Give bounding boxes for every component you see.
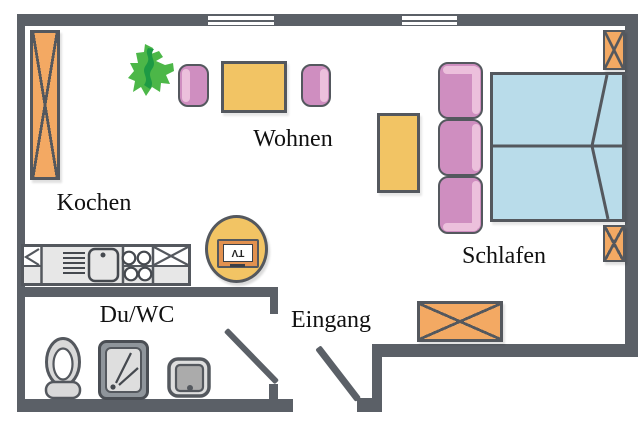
double-bed-icon bbox=[490, 72, 625, 222]
bath-doorpost-wall bbox=[270, 287, 278, 314]
room-label-kochen: Kochen bbox=[57, 190, 132, 217]
bed-linen-lines bbox=[493, 75, 622, 219]
right-wall bbox=[625, 14, 638, 357]
sofa-icon bbox=[438, 176, 483, 234]
washbasin-icon bbox=[167, 357, 211, 399]
room-label-du-wc: Du/WC bbox=[100, 302, 175, 329]
kitchen-bath-wall bbox=[17, 287, 278, 297]
sofa-icon bbox=[438, 119, 483, 176]
left-wall bbox=[17, 14, 25, 412]
room-label-wohnen: Wohnen bbox=[253, 126, 332, 153]
nightstand-icon bbox=[603, 225, 625, 262]
window-pane-line bbox=[208, 20, 274, 22]
bath-door-hinge bbox=[269, 384, 278, 399]
coffee-table-icon bbox=[221, 61, 287, 113]
room-label-schlafen: Schlafen bbox=[462, 243, 546, 270]
sofa-arm-highlight bbox=[443, 223, 478, 231]
bottom-wall-right bbox=[372, 344, 638, 357]
kitchen-counter-icon bbox=[21, 244, 191, 286]
faucet-icon bbox=[101, 253, 106, 258]
plant-icon bbox=[127, 43, 177, 103]
nightstand-icon bbox=[603, 30, 625, 70]
tv-stand bbox=[230, 264, 245, 267]
tv-screen: TV bbox=[223, 244, 253, 262]
sofa-icon bbox=[438, 62, 483, 119]
room-label-eingang: Eingang bbox=[291, 307, 371, 334]
door-swing-icon bbox=[315, 345, 361, 402]
armchair-back-highlight bbox=[320, 69, 328, 102]
sofa-seat-highlight bbox=[472, 124, 480, 171]
chest-icon bbox=[417, 301, 503, 342]
door-swing-icon bbox=[224, 328, 279, 385]
sofa-seat-highlight bbox=[472, 67, 480, 114]
side-table-icon bbox=[377, 113, 420, 193]
tv-icon: TV bbox=[217, 239, 259, 268]
tv-label: TV bbox=[231, 247, 244, 258]
tv-table-icon: TV bbox=[205, 215, 268, 283]
bottom-wall-left bbox=[17, 399, 293, 412]
top-wall bbox=[17, 14, 638, 26]
window-icon bbox=[402, 16, 457, 25]
shower-icon bbox=[98, 340, 149, 400]
armchair-icon bbox=[301, 64, 331, 107]
toilet-icon bbox=[44, 337, 84, 400]
armchair-icon bbox=[178, 64, 209, 107]
tall-cabinet-icon bbox=[30, 30, 60, 180]
window-pane-line bbox=[402, 20, 457, 22]
sofa-seat-highlight bbox=[472, 181, 480, 229]
armchair-back-highlight bbox=[182, 69, 190, 102]
floor-plan: TV bbox=[0, 0, 640, 427]
window-icon bbox=[208, 16, 274, 25]
